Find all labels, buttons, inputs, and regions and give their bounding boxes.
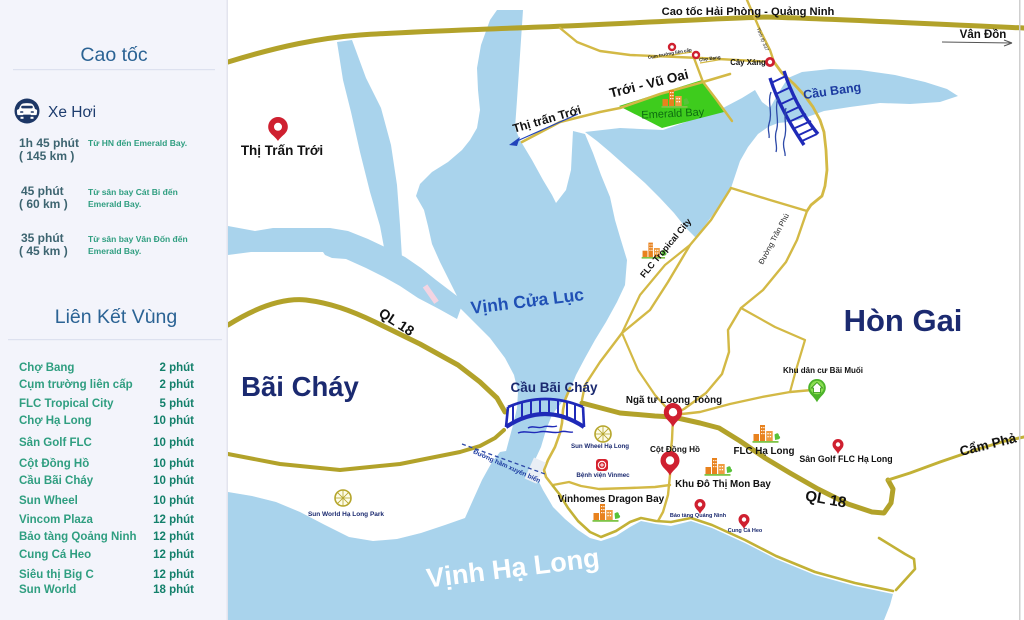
svg-text:Cao tốc: Cao tốc (80, 44, 147, 66)
svg-text:Từ HN đến Emerald Bay.: Từ HN đến Emerald Bay. (88, 138, 187, 148)
svg-text:10 phút: 10 phút (153, 415, 194, 427)
svg-text:Cung Cá Heo: Cung Cá Heo (19, 549, 91, 561)
svg-text:12 phút: 12 phút (153, 531, 194, 543)
svg-text:Cầu Bãi Cháy: Cầu Bãi Cháy (19, 475, 94, 487)
svg-text:Cụm trường liên cấp: Cụm trường liên cấp (19, 379, 133, 391)
svg-text:FLC Tropical City: FLC Tropical City (19, 398, 114, 410)
svg-text:Cầu Bãi Cháy: Cầu Bãi Cháy (510, 380, 598, 395)
svg-text:Khu dân cư Bãi Muối: Khu dân cư Bãi Muối (783, 366, 863, 375)
svg-text:Chợ Hạ Long: Chợ Hạ Long (19, 415, 92, 427)
svg-text:Cây Xáng: Cây Xáng (730, 58, 766, 67)
svg-text:10 phút: 10 phút (153, 458, 194, 470)
svg-text:12 phút: 12 phút (153, 549, 194, 561)
svg-text:Cao tốc Hải Phòng - Quảng Ninh: Cao tốc Hải Phòng - Quảng Ninh (662, 6, 835, 18)
svg-text:Vinhomes Dragon Bay: Vinhomes Dragon Bay (558, 494, 665, 505)
svg-text:10 phút: 10 phút (153, 437, 194, 449)
svg-text:( 145 km ): ( 145 km ) (19, 149, 74, 163)
svg-text:Từ sân bay Vân Đốn đến: Từ sân bay Vân Đốn đến (88, 234, 188, 244)
svg-text:Sun World: Sun World (19, 584, 76, 596)
svg-text:2 phút: 2 phút (160, 379, 195, 391)
svg-text:45 phút: 45 phút (21, 184, 64, 198)
svg-text:Cung Cá Heo: Cung Cá Heo (728, 528, 763, 534)
svg-text:Bệnh viện Vinmec: Bệnh viện Vinmec (576, 472, 630, 479)
svg-text:Khu Đô Thị Mon Bay: Khu Đô Thị Mon Bay (675, 479, 771, 490)
svg-text:Ngã tư Loong Toòng: Ngã tư Loong Toòng (626, 395, 722, 406)
svg-text:Emerald Bay.: Emerald Bay. (88, 199, 141, 209)
svg-text:Từ sân bay Cát Bi đến: Từ sân bay Cát Bi đến (88, 187, 178, 197)
svg-text:Xe Hơi: Xe Hơi (48, 104, 96, 121)
svg-text:10 phút: 10 phút (153, 475, 194, 487)
svg-text:Sân Golf FLC Hạ Long: Sân Golf FLC Hạ Long (799, 454, 892, 464)
svg-text:FLC Hạ Long: FLC Hạ Long (734, 446, 795, 457)
svg-text:Emerald Bay.: Emerald Bay. (88, 246, 141, 256)
svg-text:Sân Golf FLC: Sân Golf FLC (19, 437, 92, 449)
svg-text:Siêu thị Big C: Siêu thị Big C (19, 569, 94, 581)
svg-text:12 phút: 12 phút (153, 569, 194, 581)
svg-text:Chợ Bang: Chợ Bang (19, 362, 74, 374)
svg-text:Sun Wheel Hạ Long: Sun Wheel Hạ Long (571, 443, 629, 450)
svg-text:Vincom Plaza: Vincom Plaza (19, 514, 94, 526)
svg-text:Vân Đồn: Vân Đồn (960, 29, 1007, 41)
svg-text:2 phút: 2 phút (160, 362, 195, 374)
svg-text:10 phút: 10 phút (153, 495, 194, 507)
svg-text:Liên Kết Vùng: Liên Kết Vùng (55, 306, 178, 328)
svg-text:5 phút: 5 phút (160, 398, 195, 410)
svg-text:( 60 km ): ( 60 km ) (19, 197, 68, 211)
svg-text:Cột Đồng Hồ: Cột Đồng Hồ (19, 458, 89, 470)
svg-text:Bảo tàng Quảng Ninh: Bảo tàng Quảng Ninh (670, 513, 727, 519)
svg-text:( 45 km ): ( 45 km ) (19, 244, 68, 258)
svg-text:18 phút: 18 phút (153, 584, 194, 596)
svg-text:Sun Wheel: Sun Wheel (19, 495, 78, 507)
svg-text:35 phút: 35 phút (21, 231, 64, 245)
svg-text:Bảo tàng Qoảng Ninh: Bảo tàng Qoảng Ninh (19, 531, 137, 543)
svg-text:1h 45 phút: 1h 45 phút (19, 136, 79, 150)
svg-text:Sun World Hạ Long Park: Sun World Hạ Long Park (308, 511, 384, 518)
svg-text:Bãi Cháy: Bãi Cháy (241, 371, 359, 402)
svg-text:Hòn Gai: Hòn Gai (844, 303, 963, 338)
svg-text:Cột Đồng Hồ: Cột Đồng Hồ (650, 445, 700, 454)
svg-text:Thị Trấn Trới: Thị Trấn Trới (241, 143, 323, 158)
svg-text:12 phút: 12 phút (153, 514, 194, 526)
